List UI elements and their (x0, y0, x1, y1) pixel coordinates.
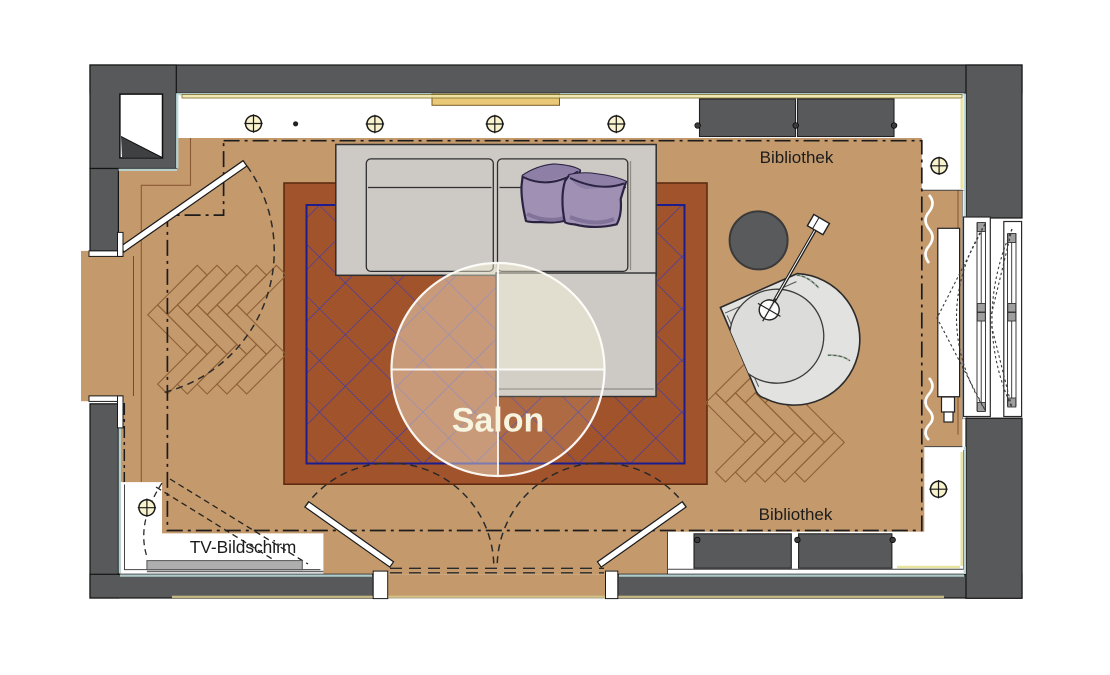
svg-text:Bibliothek: Bibliothek (759, 505, 833, 524)
svg-text:Salon: Salon (452, 402, 545, 440)
svg-text:Bibliothek: Bibliothek (760, 148, 834, 167)
svg-text:TV-Bildschirm: TV-Bildschirm (190, 537, 297, 557)
